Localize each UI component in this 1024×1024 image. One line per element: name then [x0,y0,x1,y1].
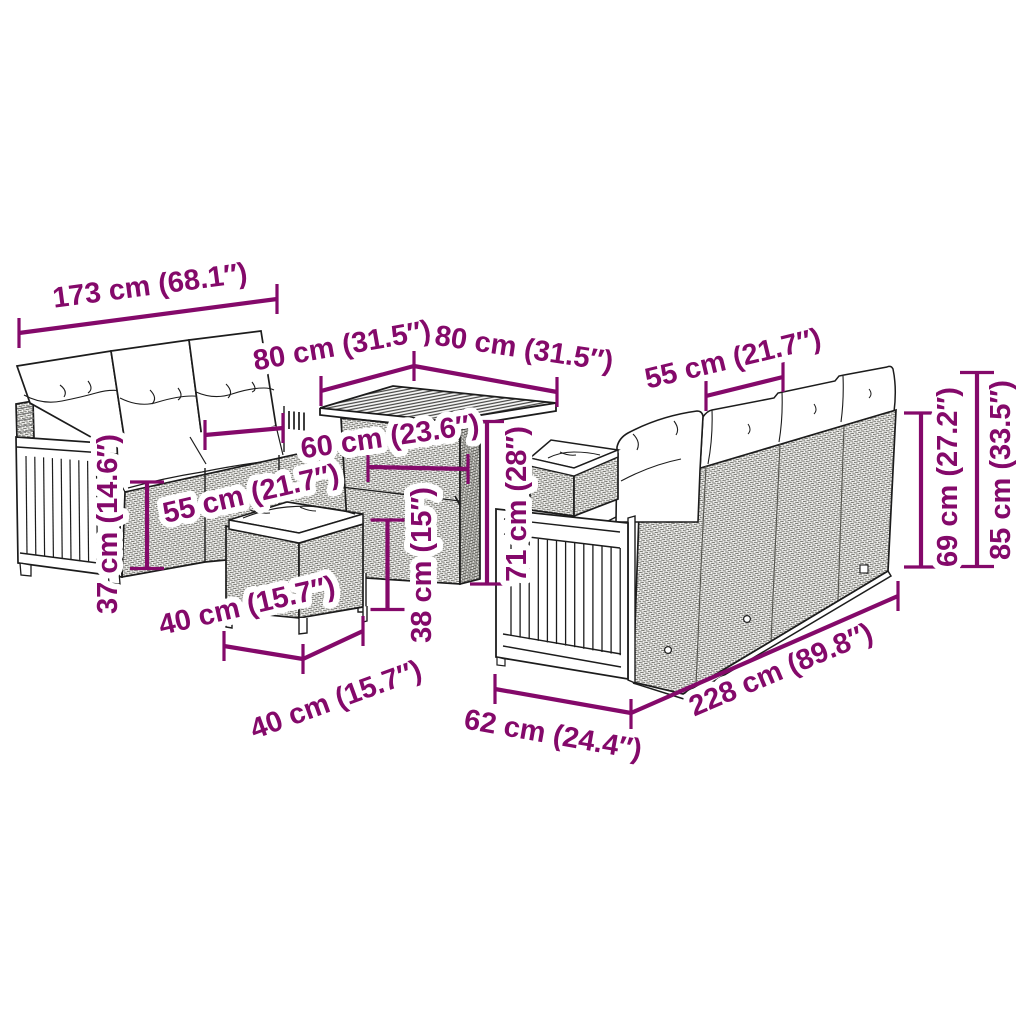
svg-text:80 cm (31.5″): 80 cm (31.5″) [433,320,616,378]
svg-text:85 cm (33.5″): 85 cm (33.5″) [985,380,1017,560]
svg-text:69 cm (27.2″): 69 cm (27.2″) [932,387,964,567]
svg-text:40 cm (15.7″): 40 cm (15.7″) [246,654,426,746]
svg-text:55 cm (21.7″): 55 cm (21.7″) [642,322,824,395]
svg-text:62 cm (24.4″): 62 cm (24.4″) [462,704,645,767]
svg-text:38 cm (15″): 38 cm (15″) [406,487,438,643]
svg-text:37 cm (14.6″): 37 cm (14.6″) [92,434,124,614]
svg-text:71 cm (28″): 71 cm (28″) [501,426,533,582]
